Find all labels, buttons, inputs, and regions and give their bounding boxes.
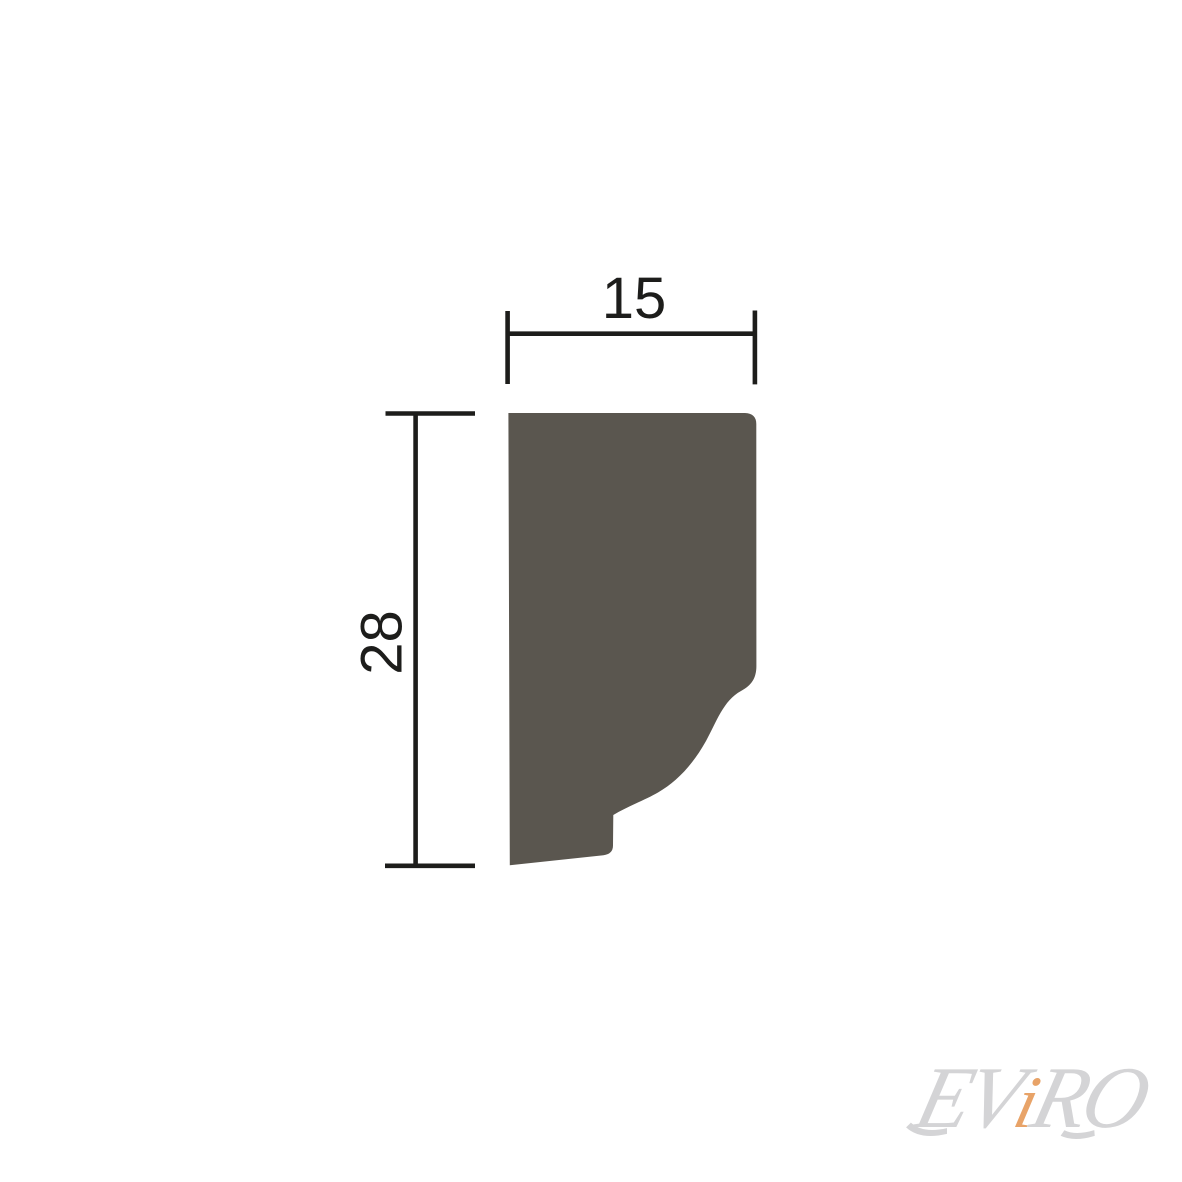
svg-text:28: 28 (350, 610, 415, 675)
svg-text:15: 15 (602, 266, 667, 331)
